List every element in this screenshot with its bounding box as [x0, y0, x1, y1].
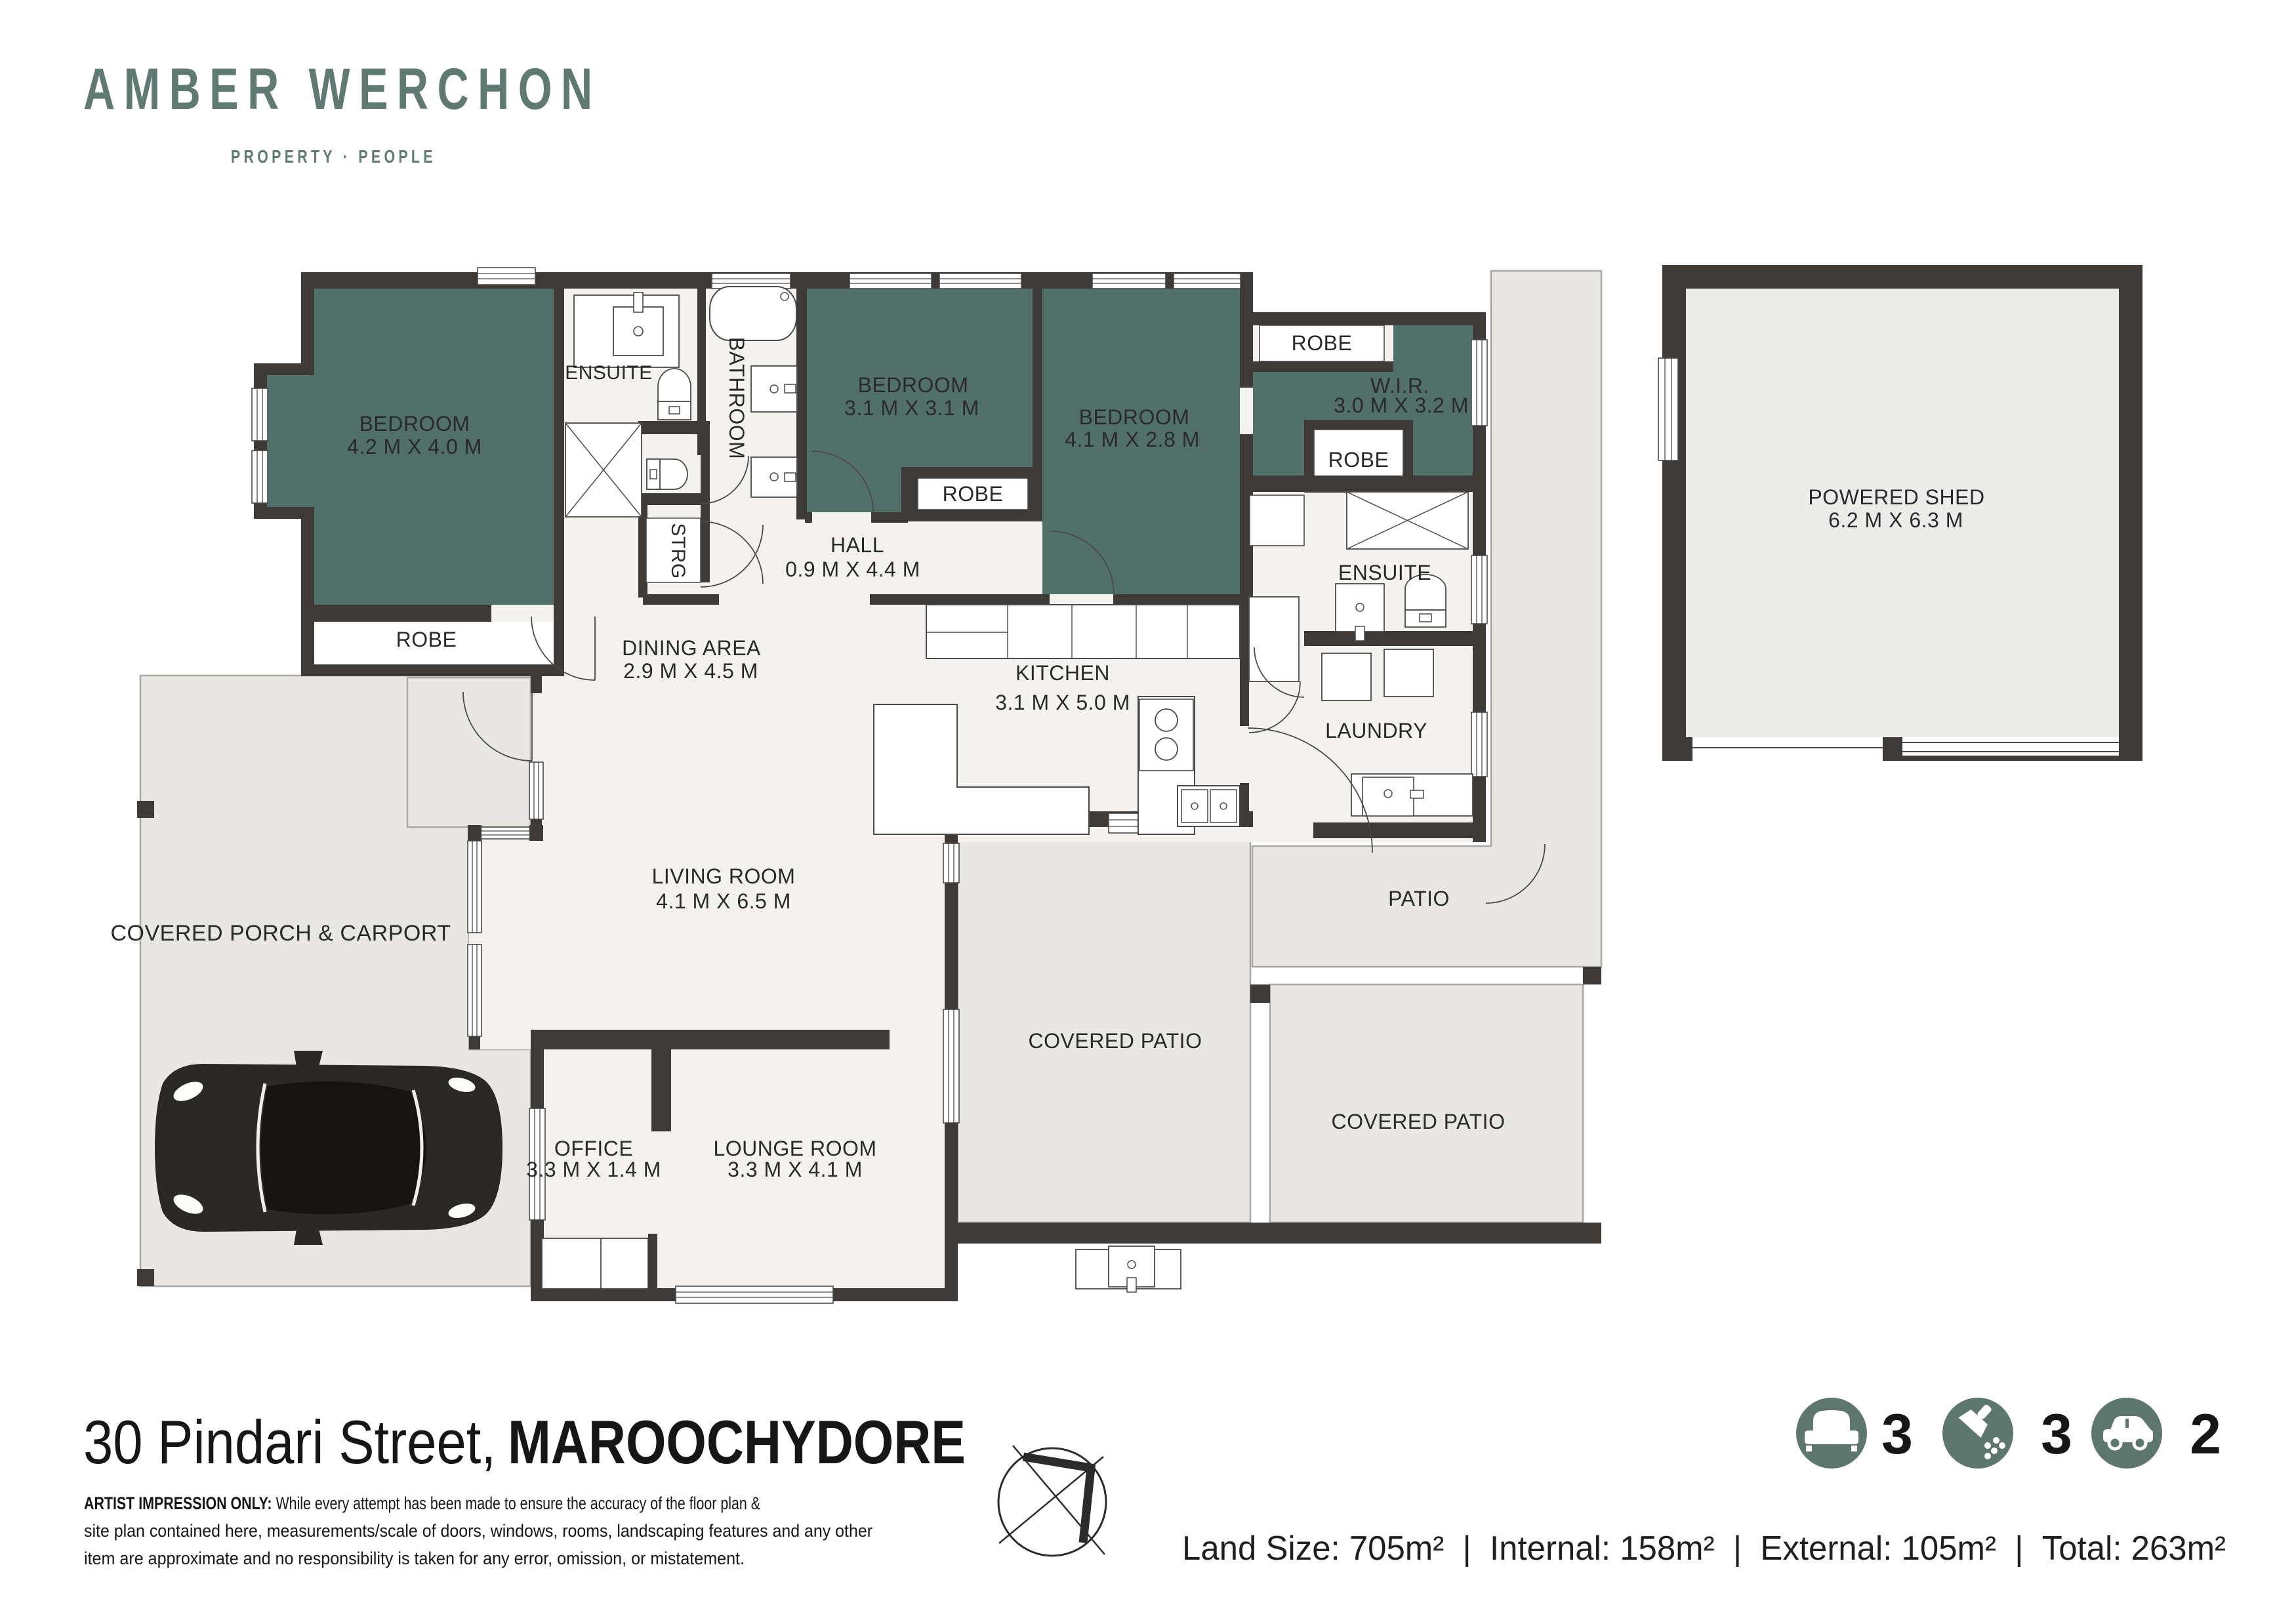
svg-text:KITCHEN: KITCHEN [1015, 661, 1110, 685]
svg-text:ARTIST IMPRESSION ONLY: While: ARTIST IMPRESSION ONLY: While every atte… [84, 1493, 760, 1513]
svg-text:30 Pindari Street,: 30 Pindari Street, [83, 1408, 496, 1476]
svg-text:OFFICE: OFFICE [554, 1137, 633, 1160]
svg-text:PATIO: PATIO [1388, 887, 1450, 910]
svg-text:LIVING ROOM: LIVING ROOM [652, 864, 796, 888]
svg-text:BEDROOM: BEDROOM [858, 373, 969, 397]
svg-text:MAROOCHYDORE: MAROOCHYDORE [508, 1408, 966, 1476]
svg-text:item are approximate and no re: item are approximate and no responsibili… [84, 1549, 745, 1568]
svg-text:ROBE: ROBE [1292, 331, 1353, 355]
svg-text:COVERED PATIO: COVERED PATIO [1029, 1029, 1202, 1053]
svg-text:LAUNDRY: LAUNDRY [1325, 719, 1427, 742]
svg-text:Land Size: 705m² | Internal:: Land Size: 705m² | Internal: 158m² | Ext… [1182, 1530, 2226, 1568]
svg-text:LOUNGE ROOM: LOUNGE ROOM [713, 1137, 876, 1160]
svg-text:ROBE: ROBE [396, 628, 457, 651]
svg-text:ROBE: ROBE [1328, 448, 1389, 472]
svg-text:POWERED SHED: POWERED SHED [1808, 485, 1984, 509]
svg-text:DINING AREA: DINING AREA [622, 636, 761, 660]
svg-text:4.2 M X 4.0 M: 4.2 M X 4.0 M [347, 435, 482, 458]
svg-text:3.1 M X 3.1 M: 3.1 M X 3.1 M [844, 396, 979, 420]
svg-text:site plan contained here, meas: site plan contained here, measurements/s… [84, 1521, 872, 1541]
svg-text:BEDROOM: BEDROOM [1079, 405, 1190, 429]
svg-text:0.9 M X 4.4 M: 0.9 M X 4.4 M [785, 558, 920, 581]
svg-text:6.2 M X 6.3 M: 6.2 M X 6.3 M [1828, 508, 1963, 532]
svg-text:BATHROOM: BATHROOM [725, 337, 748, 460]
svg-text:4.1 M X 2.8 M: 4.1 M X 2.8 M [1065, 428, 1200, 451]
svg-text:ROBE: ROBE [943, 482, 1004, 506]
svg-text:BEDROOM: BEDROOM [359, 412, 470, 436]
svg-text:PROPERTY · PEOPLE: PROPERTY · PEOPLE [231, 146, 436, 167]
svg-text:3.1 M X 5.0 M: 3.1 M X 5.0 M [995, 691, 1130, 714]
svg-text:3: 3 [1881, 1403, 1913, 1466]
svg-text:ENSUITE: ENSUITE [565, 362, 653, 384]
svg-text:COVERED PORCH & CARPORT: COVERED PORCH & CARPORT [110, 921, 451, 946]
svg-text:STRG: STRG [667, 523, 689, 578]
svg-text:AMBER WERCHON: AMBER WERCHON [83, 57, 602, 122]
svg-text:3.3 M X 4.1 M: 3.3 M X 4.1 M [728, 1158, 863, 1181]
svg-text:ENSUITE: ENSUITE [1338, 561, 1431, 584]
svg-text:4.1 M X 6.5 M: 4.1 M X 6.5 M [656, 889, 791, 913]
svg-text:3.3 M X 1.4 M: 3.3 M X 1.4 M [526, 1158, 661, 1181]
svg-text:COVERED PATIO: COVERED PATIO [1332, 1110, 1506, 1133]
svg-text:2.9 M X 4.5 M: 2.9 M X 4.5 M [623, 659, 758, 683]
svg-text:HALL: HALL [830, 533, 884, 557]
svg-text:3.0 M X 3.2 M: 3.0 M X 3.2 M [1334, 394, 1469, 417]
svg-text:2: 2 [2190, 1403, 2221, 1466]
svg-text:3: 3 [2041, 1403, 2072, 1466]
